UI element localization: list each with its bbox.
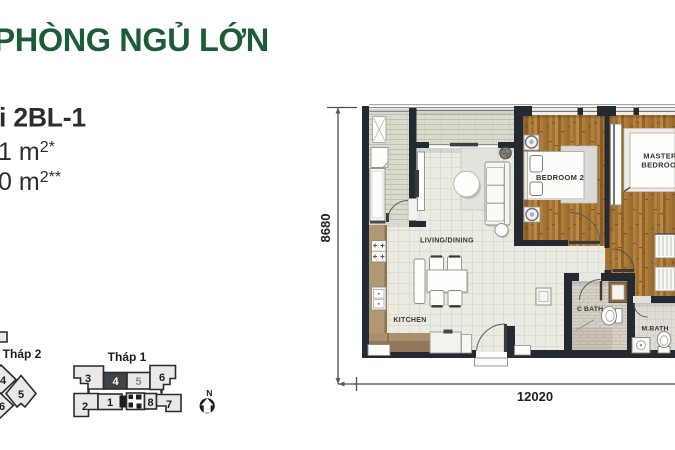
- svg-text:8: 8: [147, 397, 153, 409]
- svg-text:8680: 8680: [318, 214, 333, 243]
- svg-text:1: 1: [107, 397, 113, 409]
- svg-text:PHÒNG NGỦ LỚN: PHÒNG NGỦ LỚN: [0, 21, 269, 58]
- svg-text:BEDROOM: BEDROOM: [641, 161, 675, 170]
- svg-text:3: 3: [85, 373, 91, 385]
- svg-text:5: 5: [135, 376, 141, 388]
- svg-text:4: 4: [112, 376, 119, 388]
- svg-text:i 2BL-1: i 2BL-1: [0, 103, 86, 133]
- svg-text:2: 2: [82, 401, 88, 413]
- svg-text:N: N: [206, 388, 212, 398]
- svg-text:LIVING/DINING: LIVING/DINING: [420, 238, 474, 245]
- svg-text:Tháp 2: Tháp 2: [3, 347, 42, 361]
- svg-text:4: 4: [0, 375, 7, 387]
- svg-text:BEDROOM 2: BEDROOM 2: [536, 173, 584, 182]
- svg-text:M.BATH: M.BATH: [641, 326, 668, 333]
- svg-text:6: 6: [159, 372, 165, 384]
- svg-text:6: 6: [0, 401, 5, 413]
- svg-text:Tháp 1: Tháp 1: [108, 350, 147, 364]
- svg-text:C BATH: C BATH: [577, 306, 603, 313]
- svg-text:7: 7: [166, 399, 172, 411]
- svg-text:KITCHEN: KITCHEN: [393, 317, 426, 324]
- svg-text:12020: 12020: [517, 389, 553, 404]
- svg-text:5: 5: [18, 389, 24, 401]
- svg-text:MASTER: MASTER: [643, 152, 675, 161]
